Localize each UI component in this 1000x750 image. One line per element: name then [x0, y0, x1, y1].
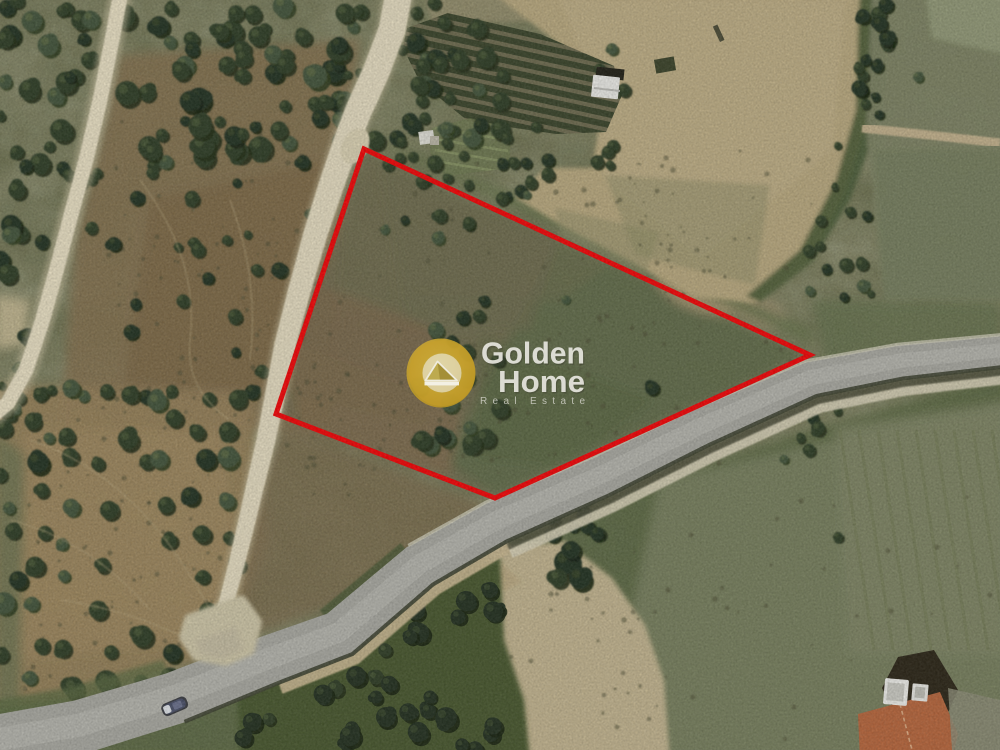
svg-text:Home: Home: [498, 365, 585, 399]
